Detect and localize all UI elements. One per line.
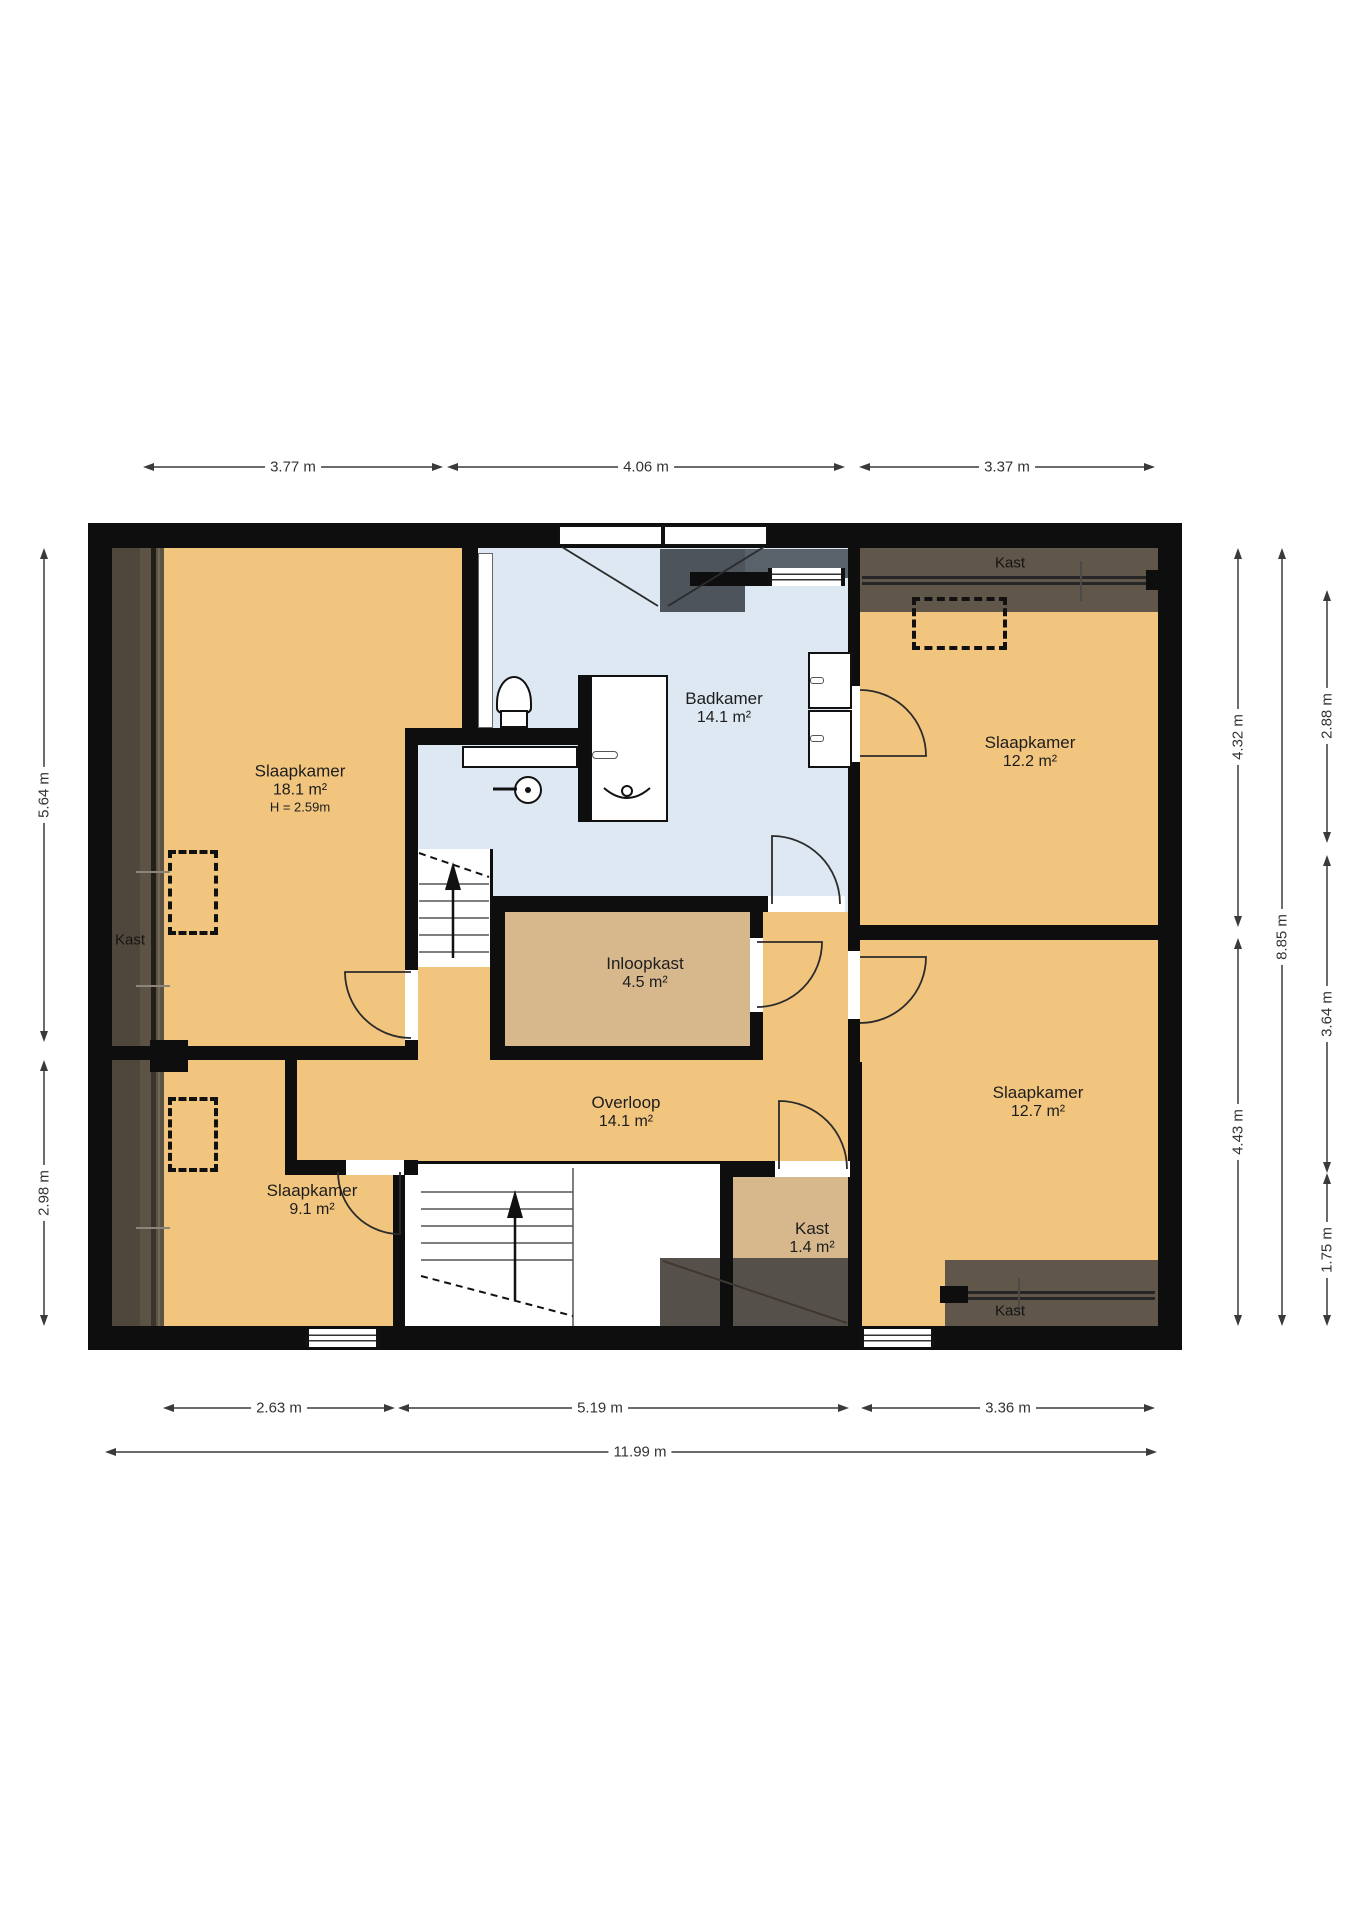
wall-kast14-north-east <box>850 1161 862 1177</box>
room-label-slaapkamer-127: Slaapkamer 12.7 m² <box>993 1083 1084 1121</box>
wall-outer-right <box>1158 523 1182 1350</box>
dim-bottom-1: 2.63 m <box>251 1400 307 1417</box>
room-area: 14.1 m² <box>685 709 762 727</box>
dim-right-364: 3.64 m <box>1319 986 1336 1042</box>
wall-bedroom127-west <box>848 1062 862 1326</box>
wall-12-2-12-7-divider <box>860 925 1158 940</box>
closet-label-left: Kast <box>115 932 145 949</box>
door-gap-bedroom18 <box>405 970 418 1040</box>
door-gap-bedroom91 <box>346 1160 404 1175</box>
closet-rail-12-2-tick <box>1080 561 1082 601</box>
roof-window-dashed-3 <box>912 597 1007 650</box>
dim-right-885: 8.85 m <box>1274 909 1291 965</box>
dim-right-288: 2.88 m <box>1319 688 1336 744</box>
wall-bedroom91-east <box>393 1163 405 1326</box>
wall-overloop-arm-west <box>285 1060 297 1173</box>
dim-total-width: 11.99 m <box>608 1444 671 1461</box>
left-strip-tick-3 <box>136 1227 170 1229</box>
left-strip-tick-1 <box>136 871 170 873</box>
roof-window-dashed-1 <box>168 850 218 935</box>
cabinet-handle-top <box>810 677 824 684</box>
dim-bottom-3: 3.36 m <box>980 1400 1036 1417</box>
floorplan-canvas: Slaapkamer 18.1 m² H = 2.59m Badkamer 14… <box>0 0 1358 1920</box>
closet-rail-12-7-end <box>940 1286 968 1303</box>
wall-stairwell-north-edge <box>405 1161 720 1164</box>
wall-outer-bottom <box>88 1326 1182 1350</box>
dim-top-1: 3.77 m <box>265 459 321 476</box>
closet-rail-12-2-end <box>1146 570 1158 590</box>
closet-rail-12-2-a <box>862 576 1148 579</box>
door-gap-badkamer <box>768 896 845 912</box>
wall-badkamer-east-2 <box>848 762 860 951</box>
room-area: 4.5 m² <box>606 974 684 992</box>
closet-rail-12-7-a <box>967 1291 1155 1294</box>
closet-label-top-right: Kast <box>995 555 1025 572</box>
dim-right-432: 4.32 m <box>1230 709 1247 765</box>
closet-rail-12-7-b <box>967 1297 1155 1300</box>
shower-head-dot <box>525 787 531 793</box>
left-strip-tick-2 <box>136 985 170 987</box>
room-area: 18.1 m² <box>255 782 346 800</box>
room-label-slaapkamer-91: Slaapkamer 9.1 m² <box>267 1181 358 1219</box>
left-strip-rail-light <box>151 1040 156 1326</box>
room-area: 9.1 m² <box>267 1201 358 1219</box>
room-name: Badkamer <box>685 689 762 709</box>
dim-top-2: 4.06 m <box>618 459 674 476</box>
dim-left-1: 5.64 m <box>36 767 53 823</box>
closet-rail-12-2-b <box>862 582 1148 585</box>
room-label-slaapkamer-18: Slaapkamer 18.1 m² H = 2.59m <box>255 762 346 815</box>
dim-right-175: 1.75 m <box>1319 1222 1336 1278</box>
left-strip-rail-thin <box>158 548 160 1326</box>
cabinet-handle-bottom <box>810 735 824 742</box>
room-area: 12.7 m² <box>993 1103 1084 1121</box>
wall-bathtub-west <box>578 675 590 822</box>
room-name: Slaapkamer <box>993 1083 1084 1103</box>
wall-bedroom91-north-west <box>285 1160 346 1175</box>
room-label-overloop: Overloop 14.1 m² <box>592 1093 661 1131</box>
dim-bottom-2: 5.19 m <box>572 1400 628 1417</box>
room-area: 14.1 m² <box>592 1113 661 1131</box>
room-area: 12.2 m² <box>985 753 1076 771</box>
room-label-slaapkamer-122: Slaapkamer 12.2 m² <box>985 733 1076 771</box>
roof-window-dashed-2 <box>168 1097 218 1172</box>
closet-label-bottom-right: Kast <box>995 1303 1025 1320</box>
room-label-inloopkast: Inloopkast 4.5 m² <box>606 954 684 992</box>
wall-dormer-stub <box>690 572 768 586</box>
room-name: Inloopkast <box>606 954 684 974</box>
radiator-duct <box>478 553 493 728</box>
room-area: 1.4 m² <box>789 1239 834 1257</box>
room-name: Slaapkamer <box>267 1181 358 1201</box>
room-slaapkamer-18-floor <box>112 547 462 730</box>
wall-inloopkast-east-upper <box>750 910 763 940</box>
door-gap-inloopkast <box>750 938 763 1012</box>
room-name: Slaapkamer <box>255 762 346 782</box>
wall-toilet-alcove-south <box>405 728 578 745</box>
wall-kast14-north-west <box>733 1161 775 1177</box>
wall-outer-left <box>88 523 112 1350</box>
wall-badkamer-east-3 <box>848 1019 860 1062</box>
window-bedroom127-south <box>860 1329 935 1347</box>
dim-right-443: 4.43 m <box>1230 1104 1247 1160</box>
wall-badkamer-south <box>490 896 770 912</box>
window-bedroom91-south <box>305 1329 380 1347</box>
room-name: Kast <box>789 1219 834 1239</box>
wall-junction-nub <box>150 1040 188 1072</box>
room-label-badkamer: Badkamer 14.1 m² <box>685 689 762 727</box>
wall-kast14-west <box>720 1161 733 1326</box>
door-gap-bedroom127 <box>848 951 860 1019</box>
dim-top-3: 3.37 m <box>979 459 1035 476</box>
room-name: Overloop <box>592 1093 661 1113</box>
wall-bedroom18-east-upper <box>462 547 478 745</box>
toilet-tank <box>500 710 528 728</box>
wall-stairs-east-edge <box>490 849 493 967</box>
window-badkamer-dormer <box>768 568 845 586</box>
wall-inloopkast-south <box>490 1046 763 1060</box>
room-label-kast14: Kast 1.4 m² <box>789 1219 834 1257</box>
dim-left-2: 2.98 m <box>36 1165 53 1221</box>
bathtub-faucet <box>592 751 618 759</box>
room-name: Slaapkamer <box>985 733 1076 753</box>
door-gap-kast14 <box>775 1161 850 1177</box>
double-door-center-jamb <box>661 525 665 546</box>
left-strip-rail-dark <box>151 548 156 1040</box>
low-headroom-overlay <box>660 1258 850 1326</box>
room-height: H = 2.59m <box>255 800 346 815</box>
washbasin-counter <box>462 746 578 768</box>
bathtub <box>590 675 668 822</box>
stairs-upper-area <box>418 849 490 967</box>
